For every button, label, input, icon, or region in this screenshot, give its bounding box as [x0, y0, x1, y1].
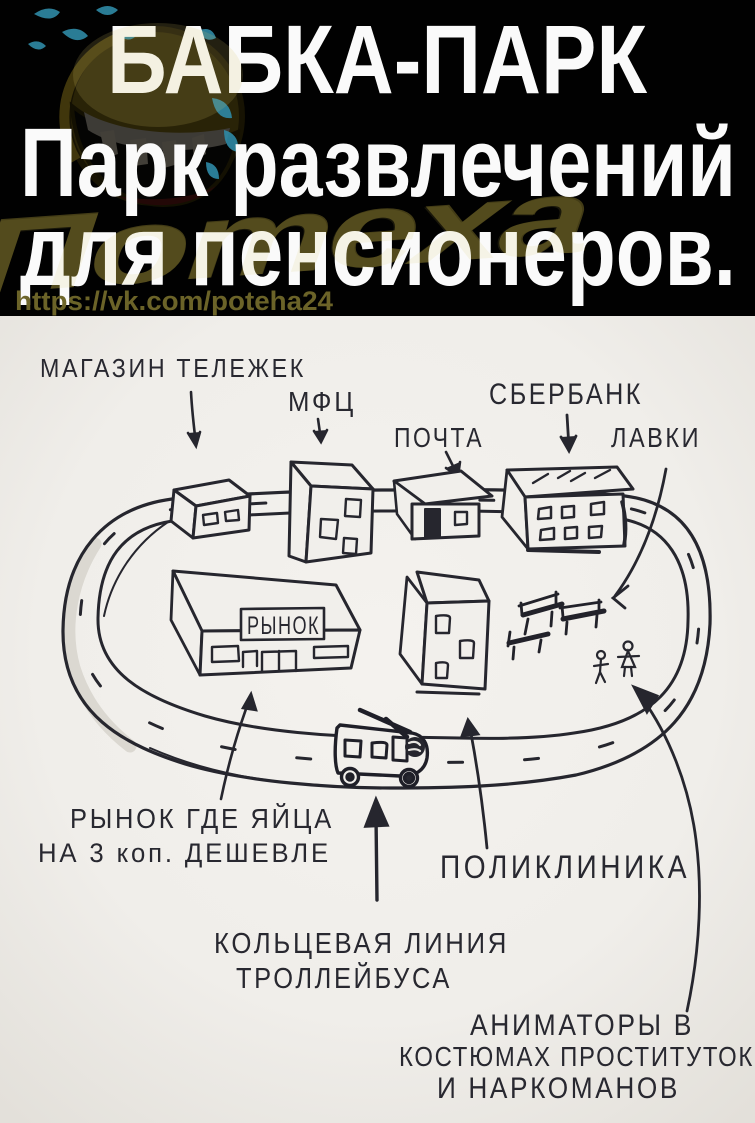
svg-text:РЫНОК: РЫНОК [247, 612, 320, 640]
svg-text:НА 3 коп. ДЕШЕВЛЕ: НА 3 коп. ДЕШЕВЛЕ [38, 838, 331, 868]
svg-text:И НАРКОМАНОВ: И НАРКОМАНОВ [437, 1072, 680, 1105]
svg-text:РЫНОК ГДЕ ЯЙЦА: РЫНОК ГДЕ ЯЙЦА [70, 803, 334, 834]
svg-text:МАГАЗИН ТЕЛЕЖЕК: МАГАЗИН ТЕЛЕЖЕК [40, 353, 306, 383]
svg-text:МФЦ: МФЦ [288, 386, 356, 417]
svg-text:КОЛЬЦЕВАЯ ЛИНИЯ: КОЛЬЦЕВАЯ ЛИНИЯ [214, 928, 509, 960]
svg-text:СБЕРБАНК: СБЕРБАНК [489, 378, 643, 411]
svg-text:https://vk.com/poteha24: https://vk.com/poteha24 [15, 286, 333, 316]
svg-text:ПОЛИКЛИНИКА: ПОЛИКЛИНИКА [440, 849, 690, 885]
svg-text:ТРОЛЛЕЙБУСА: ТРОЛЛЕЙБУСА [236, 961, 452, 995]
svg-text:ЛАВКИ: ЛАВКИ [611, 422, 701, 453]
svg-text:КОСТЮМАХ ПРОСТИТУТОК: КОСТЮМАХ ПРОСТИТУТОК [399, 1041, 754, 1072]
svg-text:АНИМАТОРЫ В: АНИМАТОРЫ В [470, 1009, 694, 1042]
svg-text:ПОЧТА: ПОЧТА [394, 422, 484, 453]
